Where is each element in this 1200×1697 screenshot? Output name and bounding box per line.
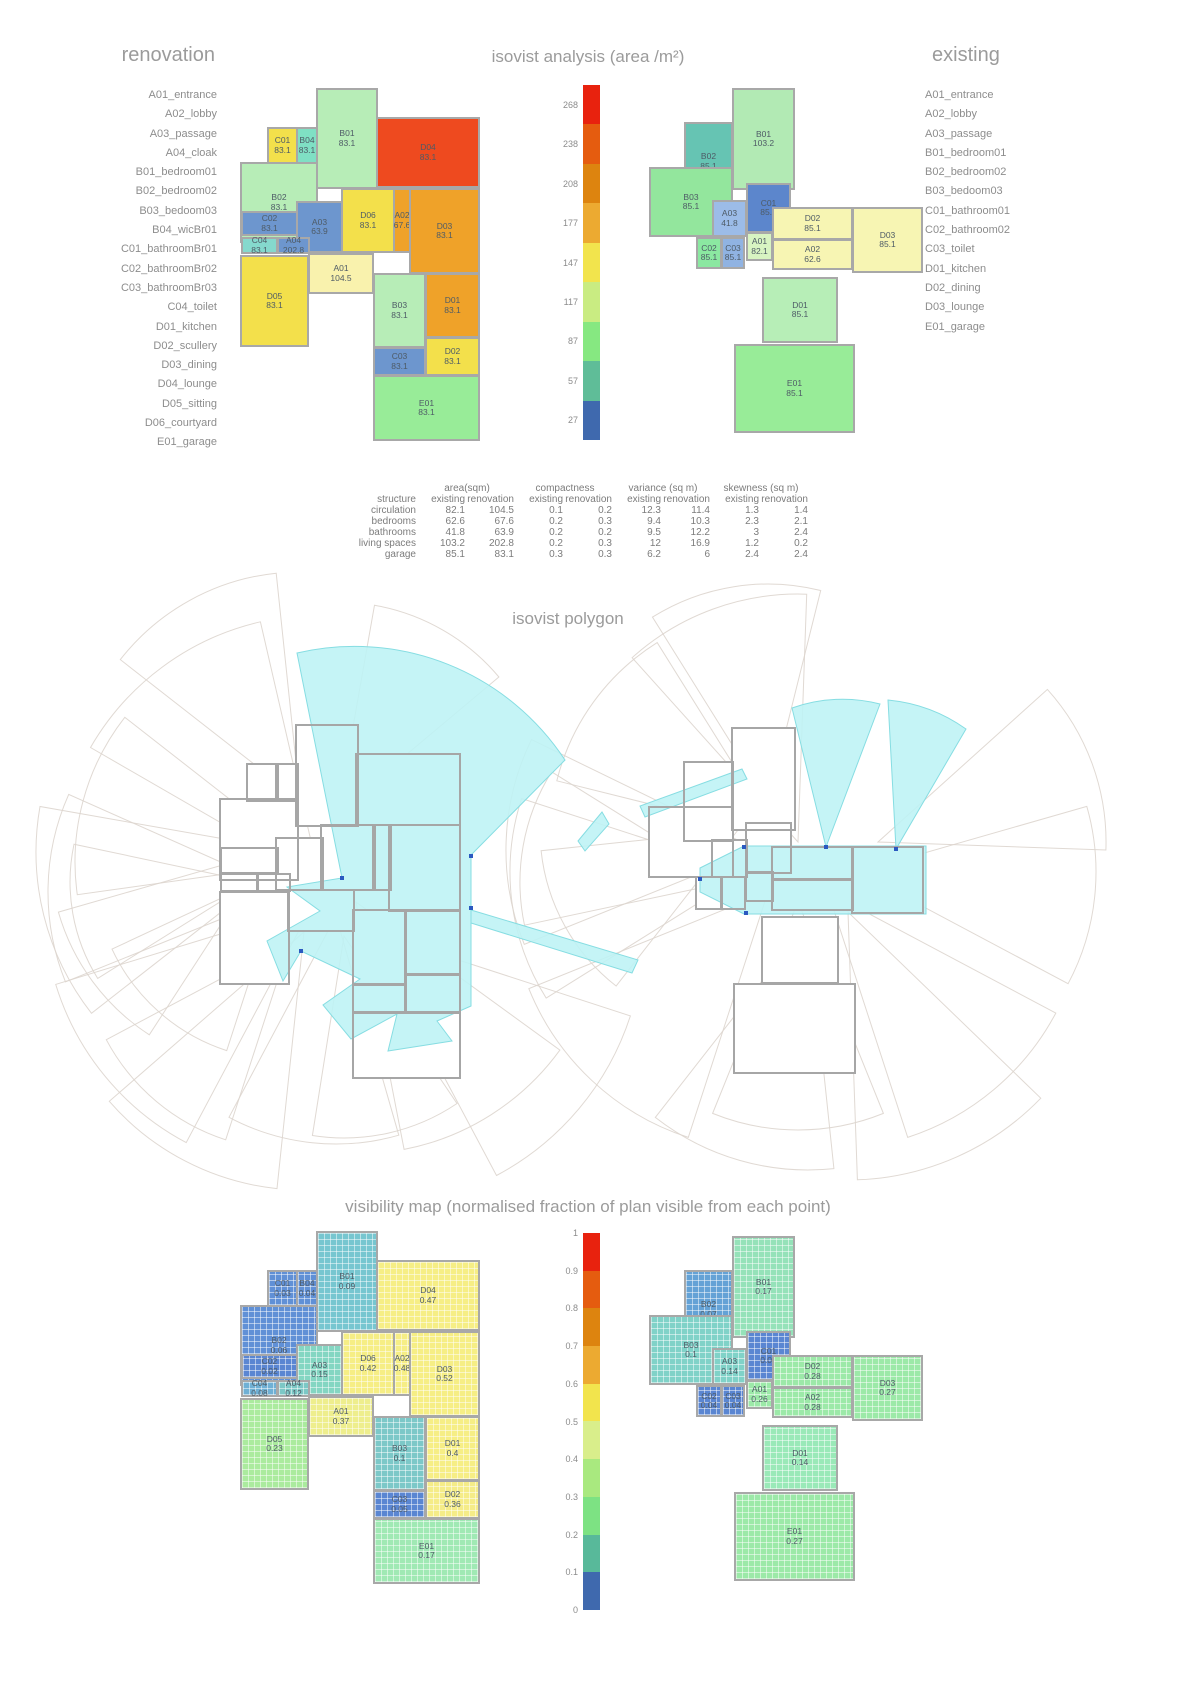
observation-point-marker — [340, 876, 344, 880]
observation-point-marker — [824, 845, 828, 849]
observation-point-marker — [469, 906, 473, 910]
visibility-map-title: visibility map (normalised fraction of p… — [278, 1197, 898, 1217]
observation-point-marker — [469, 854, 473, 858]
plan-wall — [221, 848, 278, 873]
isovist-polygon-shape — [471, 910, 638, 973]
plan-wall — [247, 764, 278, 801]
isovist-polygon-drawing — [0, 0, 1200, 1697]
observation-point-marker — [698, 877, 702, 881]
observation-point-marker — [744, 911, 748, 915]
page: isovist analysis (area /m²) renovation e… — [0, 0, 1200, 1697]
plan-wall — [276, 764, 298, 801]
isovist-polygon-title: isovist polygon — [258, 609, 878, 629]
observation-point-marker — [299, 949, 303, 953]
isovist-fan-outline — [828, 892, 1056, 1137]
isovist-polygon-shape — [888, 700, 966, 849]
isovist-fan-outline — [529, 892, 768, 1137]
observation-point-marker — [894, 847, 898, 851]
plan-wall — [221, 874, 258, 891]
plan-wall — [257, 874, 290, 891]
isovist-fan-outline — [848, 912, 1041, 1180]
plan-wall — [734, 984, 855, 1073]
plan-wall — [762, 917, 838, 983]
observation-point-marker — [742, 845, 746, 849]
isovist-polygon-shape — [792, 699, 880, 847]
